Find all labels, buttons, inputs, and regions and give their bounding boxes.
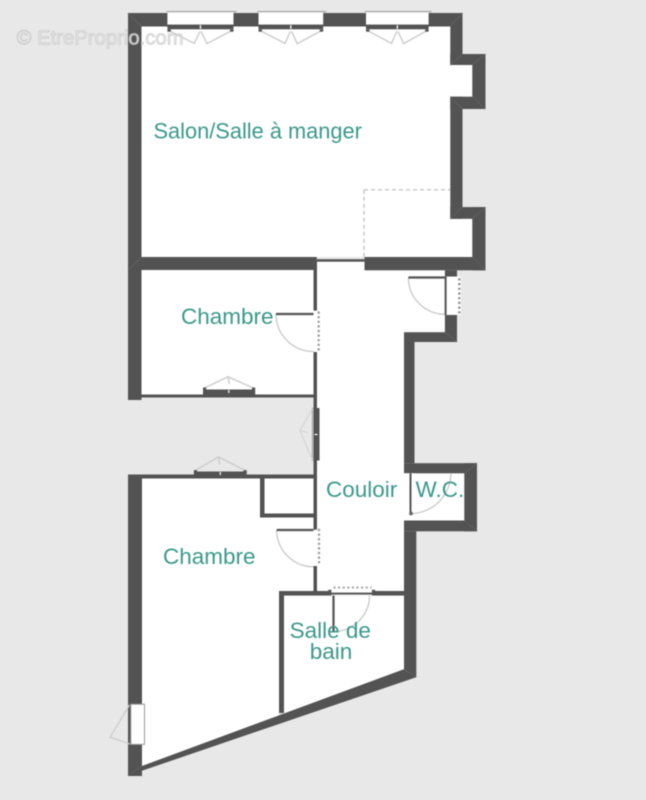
- svg-text:Chambre: Chambre: [163, 544, 256, 569]
- svg-text:Couloir: Couloir: [326, 477, 398, 502]
- svg-text:W.C.: W.C.: [416, 477, 465, 502]
- svg-text:bain: bain: [310, 639, 353, 664]
- svg-text:Chambre: Chambre: [181, 304, 274, 329]
- svg-text:Salon/Salle à manger: Salon/Salle à manger: [154, 119, 362, 144]
- svg-text:© EtreProprio.com: © EtreProprio.com: [17, 28, 184, 50]
